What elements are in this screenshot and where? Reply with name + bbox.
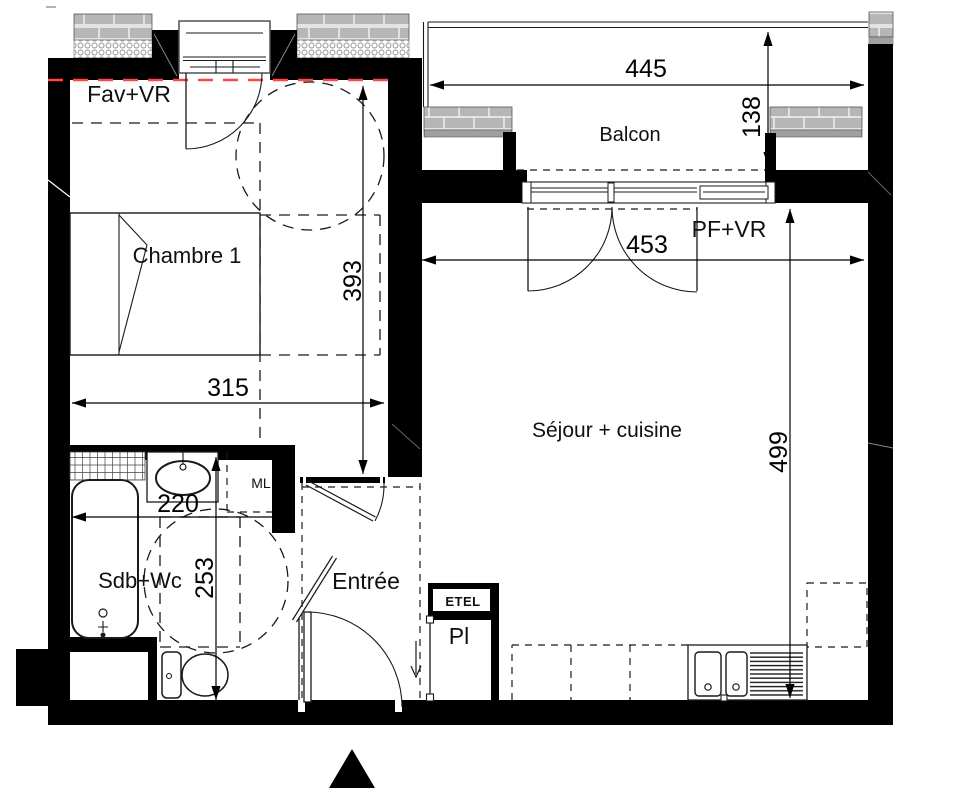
- label-etel: ETEL: [445, 594, 480, 609]
- dim-445: 445: [625, 55, 667, 83]
- label-fav-vr: Fav+VR: [87, 81, 171, 107]
- dim-315: 315: [207, 374, 249, 402]
- bed: [70, 213, 260, 355]
- dim-393: 393: [339, 260, 367, 302]
- floor-plan-page: 445 138 453 393 315 499 220 253 Fav+VR C…: [0, 0, 954, 800]
- bathtub: [72, 480, 138, 638]
- dim-453: 453: [626, 231, 668, 259]
- label-sejour: Séjour + cuisine: [532, 419, 682, 442]
- kitchen-unit: [688, 645, 807, 701]
- drainer: [750, 652, 803, 697]
- label-entree: Entrée: [332, 568, 400, 594]
- dim-220: 220: [157, 490, 199, 518]
- dim-138: 138: [738, 96, 766, 138]
- label-ml: ML: [251, 475, 271, 491]
- dim-499: 499: [765, 431, 793, 473]
- toilet: [162, 652, 228, 698]
- label-balcon: Balcon: [599, 124, 660, 146]
- floor-plan-svg: 445 138 453 393 315 499 220 253 Fav+VR C…: [0, 0, 954, 800]
- label-pf-vr: PF+VR: [692, 216, 767, 242]
- label-pl: Pl: [449, 623, 469, 649]
- balcony-parapet-left: [424, 107, 512, 137]
- balcony-parapet-right: [770, 107, 862, 137]
- label-chambre: Chambre 1: [133, 243, 242, 268]
- sink-tap: [721, 695, 727, 701]
- dim-253: 253: [191, 557, 219, 599]
- tiled-area: [70, 452, 145, 480]
- label-sdb: Sdb+Wc: [98, 568, 182, 593]
